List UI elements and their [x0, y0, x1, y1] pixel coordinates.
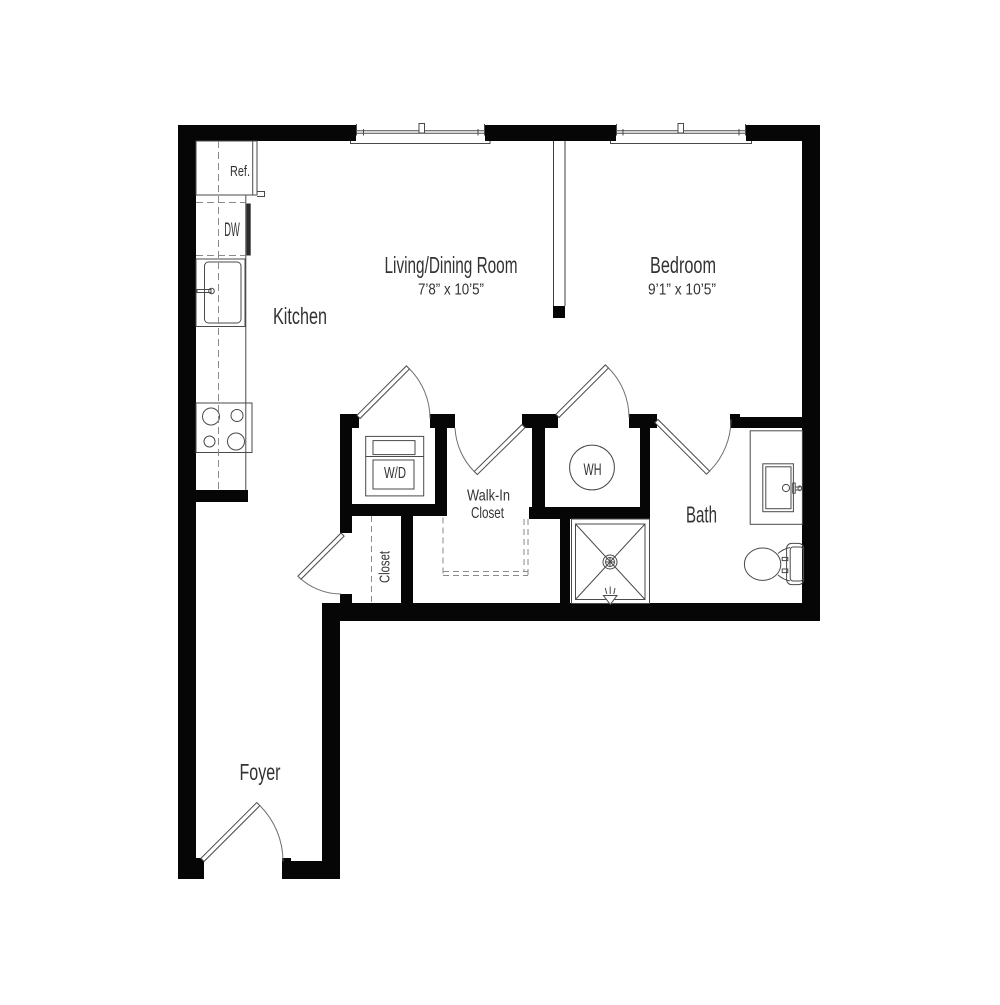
svg-text:W/D: W/D	[384, 465, 406, 482]
svg-text:Closet: Closet	[377, 550, 394, 583]
svg-text:Bedroom: Bedroom	[650, 252, 716, 278]
svg-text:Living/Dining Room: Living/Dining Room	[385, 252, 518, 278]
svg-text:WH: WH	[584, 460, 602, 479]
svg-text:Walk-In: Walk-In	[467, 488, 510, 505]
svg-text:Ref.: Ref.	[230, 163, 250, 180]
svg-text:9’1” x 10’5”: 9’1” x 10’5”	[648, 282, 716, 299]
svg-text:7’8” x 10’5”: 7’8” x 10’5”	[418, 282, 484, 299]
svg-text:Bath: Bath	[686, 502, 717, 528]
svg-text:Foyer: Foyer	[240, 759, 281, 785]
svg-text:Closet: Closet	[471, 505, 504, 522]
svg-text:DW: DW	[224, 220, 240, 241]
svg-text:Kitchen: Kitchen	[273, 303, 327, 329]
